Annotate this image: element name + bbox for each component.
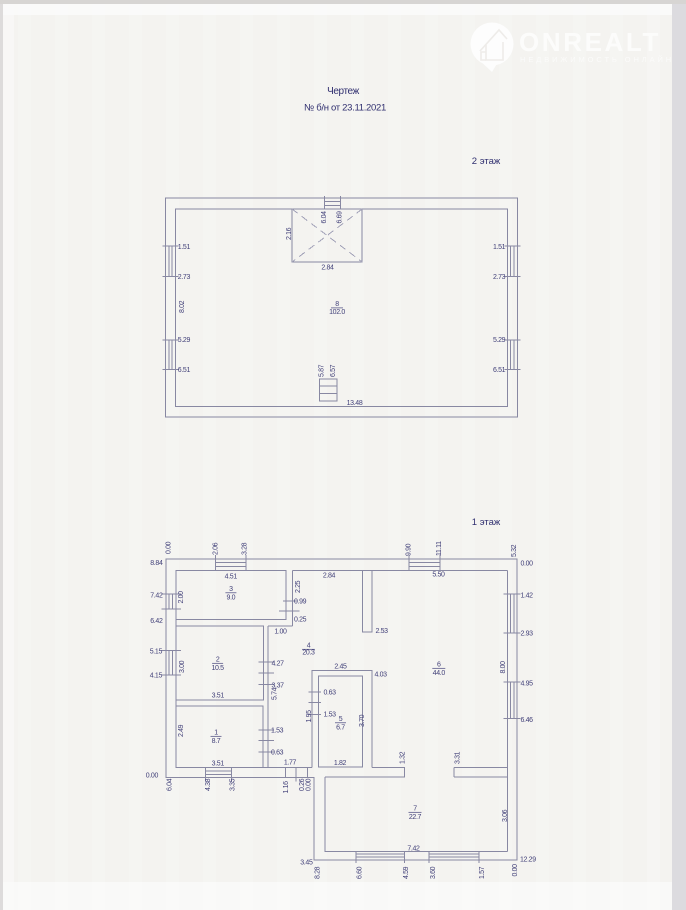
svg-text:1.57: 1.57 bbox=[479, 866, 486, 879]
svg-text:7.42: 7.42 bbox=[150, 593, 163, 600]
svg-text:2.06: 2.06 bbox=[212, 542, 219, 555]
svg-text:3: 3 bbox=[229, 586, 233, 593]
svg-text:2 этаж: 2 этаж bbox=[472, 156, 501, 167]
svg-text:5.15: 5.15 bbox=[150, 649, 163, 656]
svg-text:1.53: 1.53 bbox=[324, 712, 337, 719]
svg-text:0.00: 0.00 bbox=[512, 864, 519, 877]
svg-text:5.74: 5.74 bbox=[272, 687, 279, 700]
svg-text:4.03: 4.03 bbox=[375, 672, 388, 679]
svg-text:0.00: 0.00 bbox=[521, 561, 534, 568]
svg-text:6.51: 6.51 bbox=[493, 367, 506, 374]
svg-text:22.7: 22.7 bbox=[409, 814, 422, 821]
svg-text:4.15: 4.15 bbox=[150, 673, 163, 680]
svg-text:5.29: 5.29 bbox=[493, 337, 506, 344]
svg-text:6: 6 bbox=[437, 662, 441, 669]
svg-text:6.04: 6.04 bbox=[321, 211, 328, 224]
svg-text:1.32: 1.32 bbox=[400, 751, 407, 764]
svg-text:3.51: 3.51 bbox=[212, 693, 225, 700]
svg-text:2.49: 2.49 bbox=[178, 724, 185, 737]
svg-text:8.7: 8.7 bbox=[212, 738, 221, 745]
svg-text:7: 7 bbox=[413, 806, 417, 813]
svg-text:2.16: 2.16 bbox=[286, 227, 293, 240]
svg-text:3.60: 3.60 bbox=[430, 866, 437, 879]
svg-text:12.29: 12.29 bbox=[520, 857, 536, 864]
svg-text:8.02: 8.02 bbox=[179, 300, 186, 313]
svg-text:9.90: 9.90 bbox=[405, 543, 412, 556]
svg-text:6.60: 6.60 bbox=[356, 866, 363, 879]
svg-text:5.50: 5.50 bbox=[432, 572, 445, 579]
svg-text:1 этаж: 1 этаж bbox=[472, 517, 501, 528]
svg-text:6.04: 6.04 bbox=[166, 778, 173, 791]
svg-text:6.7: 6.7 bbox=[336, 725, 345, 732]
svg-text:4.38: 4.38 bbox=[205, 778, 212, 791]
svg-text:8: 8 bbox=[335, 301, 339, 308]
svg-text:4: 4 bbox=[307, 643, 311, 650]
svg-text:6.46: 6.46 bbox=[521, 717, 534, 724]
svg-text:ONREALT: ONREALT bbox=[519, 27, 661, 57]
svg-text:7.42: 7.42 bbox=[407, 846, 420, 853]
svg-text:1.42: 1.42 bbox=[521, 593, 534, 600]
svg-text:20.3: 20.3 bbox=[302, 650, 315, 657]
svg-text:1.95: 1.95 bbox=[306, 710, 313, 723]
svg-text:102.0: 102.0 bbox=[329, 309, 345, 316]
svg-text:4.95: 4.95 bbox=[521, 681, 534, 688]
svg-text:11.11: 11.11 bbox=[436, 541, 443, 556]
svg-text:2.45: 2.45 bbox=[334, 664, 347, 671]
svg-text:3.28: 3.28 bbox=[241, 542, 248, 555]
svg-text:4.51: 4.51 bbox=[225, 574, 238, 581]
svg-text:6.57: 6.57 bbox=[330, 364, 337, 377]
svg-text:3.45: 3.45 bbox=[300, 860, 313, 867]
svg-text:3.06: 3.06 bbox=[502, 809, 509, 822]
svg-text:0.63: 0.63 bbox=[271, 750, 284, 757]
svg-text:10.5: 10.5 bbox=[211, 665, 224, 672]
svg-text:2.73: 2.73 bbox=[493, 274, 506, 281]
svg-text:1.82: 1.82 bbox=[334, 760, 347, 767]
svg-text:1.51: 1.51 bbox=[178, 244, 191, 251]
svg-text:2.93: 2.93 bbox=[521, 631, 534, 638]
svg-text:5.87: 5.87 bbox=[319, 364, 326, 377]
svg-text:1: 1 bbox=[214, 730, 218, 737]
svg-text:2.84: 2.84 bbox=[321, 265, 334, 272]
svg-text:4.59: 4.59 bbox=[403, 866, 410, 879]
svg-text:2.73: 2.73 bbox=[178, 274, 191, 281]
svg-text:6.51: 6.51 bbox=[178, 367, 191, 374]
svg-text:1.51: 1.51 bbox=[493, 244, 506, 251]
svg-text:2.00: 2.00 bbox=[178, 591, 185, 604]
svg-text:6.42: 6.42 bbox=[150, 618, 163, 625]
svg-text:0.00: 0.00 bbox=[306, 778, 313, 791]
svg-text:4.27: 4.27 bbox=[272, 661, 285, 668]
svg-text:8.28: 8.28 bbox=[315, 866, 322, 879]
svg-text:Чертеж: Чертеж bbox=[327, 86, 359, 97]
svg-text:3.35: 3.35 bbox=[230, 778, 237, 791]
svg-text:3.70: 3.70 bbox=[359, 714, 366, 727]
svg-text:1.53: 1.53 bbox=[271, 728, 284, 735]
svg-text:2: 2 bbox=[216, 657, 220, 664]
svg-text:3.31: 3.31 bbox=[455, 751, 462, 764]
svg-text:0.25: 0.25 bbox=[294, 617, 307, 624]
svg-text:2.53: 2.53 bbox=[376, 628, 389, 635]
svg-text:0.00: 0.00 bbox=[166, 541, 173, 554]
svg-text:0.99: 0.99 bbox=[294, 599, 307, 606]
svg-text:5.29: 5.29 bbox=[178, 337, 191, 344]
svg-text:13.48: 13.48 bbox=[347, 400, 363, 407]
svg-text:№ б/н от 23.11.2021: № б/н от 23.11.2021 bbox=[304, 103, 386, 114]
svg-text:8.00: 8.00 bbox=[500, 661, 507, 674]
svg-text:1.00: 1.00 bbox=[274, 629, 287, 636]
svg-text:0.63: 0.63 bbox=[324, 690, 337, 697]
svg-text:9.0: 9.0 bbox=[227, 595, 236, 602]
svg-text:5: 5 bbox=[339, 716, 343, 723]
svg-text:6.69: 6.69 bbox=[337, 211, 344, 224]
svg-text:2.25: 2.25 bbox=[295, 580, 302, 593]
svg-text:НЕДВИЖИМОСТЬ ОНЛАЙН: НЕДВИЖИМОСТЬ ОНЛАЙН bbox=[520, 55, 674, 64]
svg-text:1.16: 1.16 bbox=[283, 781, 290, 794]
svg-text:2.84: 2.84 bbox=[323, 573, 336, 580]
svg-text:0.00: 0.00 bbox=[146, 773, 159, 780]
svg-text:8.84: 8.84 bbox=[150, 560, 163, 567]
svg-text:1.77: 1.77 bbox=[284, 760, 297, 767]
svg-text:3.00: 3.00 bbox=[179, 660, 186, 673]
svg-text:5.32: 5.32 bbox=[511, 544, 518, 557]
svg-text:44.0: 44.0 bbox=[433, 670, 446, 677]
svg-text:3.51: 3.51 bbox=[212, 761, 225, 768]
